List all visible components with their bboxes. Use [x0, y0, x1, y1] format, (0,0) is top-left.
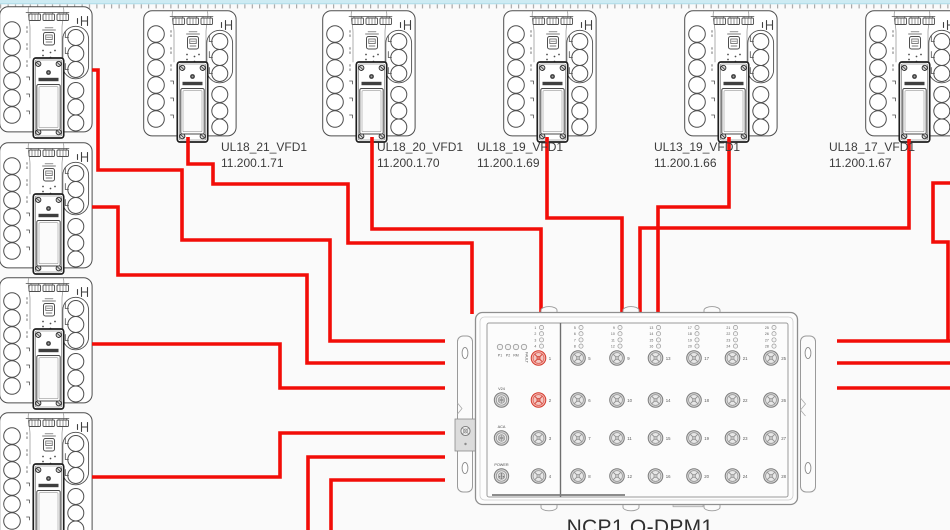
vfd-device-UL18_17_VFD1[interactable]	[866, 11, 950, 142]
svg-text:25: 25	[765, 326, 769, 330]
vfd-device-UL18_19_VFD1[interactable]	[504, 11, 596, 142]
svg-text:22: 22	[726, 332, 730, 336]
svg-text:23: 23	[726, 338, 730, 342]
svg-text:19: 19	[688, 338, 692, 342]
wiring-diagram[interactable]: 1234123456785678910111291011121314151613…	[0, 0, 950, 530]
svg-text:9: 9	[613, 326, 615, 330]
cable-9[interactable]	[547, 137, 622, 314]
port-number: 20	[704, 474, 709, 479]
svg-text:3: 3	[534, 338, 536, 342]
svg-text:POWER: POWER	[494, 463, 509, 467]
port-number: 22	[743, 398, 748, 403]
svg-text:16: 16	[649, 345, 653, 349]
vfd-device-UL18_21_VFD1[interactable]	[144, 11, 236, 142]
port-number: 25	[781, 356, 786, 361]
svg-text:26: 26	[765, 332, 769, 336]
port-number: 17	[704, 356, 709, 361]
svg-text:24: 24	[726, 345, 730, 349]
dbx-title: NCP1 Q-DPM1	[475, 516, 805, 530]
port-number: 21	[743, 356, 748, 361]
svg-text:2: 2	[534, 332, 536, 336]
vfd-device-left-2[interactable]	[0, 143, 92, 274]
svg-text:10: 10	[611, 332, 615, 336]
port-number: 10	[627, 398, 632, 403]
port-number: 26	[781, 398, 786, 403]
port-number: 13	[666, 356, 671, 361]
svg-text:13: 13	[649, 326, 653, 330]
port-number: 18	[704, 398, 709, 403]
svg-text:P1: P1	[498, 354, 502, 358]
svg-text:27: 27	[765, 338, 769, 342]
vfd-device-left-3[interactable]	[0, 278, 92, 409]
svg-text:12: 12	[611, 345, 615, 349]
port-number: 12	[627, 474, 632, 479]
svg-text:28: 28	[765, 345, 769, 349]
cable-5[interactable]	[308, 457, 445, 530]
svg-text:8: 8	[574, 345, 576, 349]
diagram-canvas[interactable]: 1234123456785678910111291011121314151613…	[0, 0, 950, 530]
svg-text:FAULT: FAULT	[524, 352, 528, 364]
svg-text:20: 20	[688, 345, 692, 349]
port-number: 28	[781, 474, 786, 479]
port-number: 16	[666, 474, 671, 479]
svg-text:14: 14	[649, 332, 653, 336]
cable-10[interactable]	[658, 137, 729, 314]
svg-text:21: 21	[726, 326, 730, 330]
svg-text:18: 18	[688, 332, 692, 336]
port-number: 23	[743, 436, 748, 441]
aux-port-POWER[interactable]: POWER	[494, 463, 509, 483]
svg-text:P2: P2	[506, 354, 510, 358]
port-number: 19	[704, 436, 709, 441]
port-number: 15	[666, 436, 671, 441]
dbx-right-bracket	[801, 336, 816, 492]
svg-text:6: 6	[574, 332, 576, 336]
vfd-device-UL18_20_VFD1[interactable]	[323, 11, 415, 142]
port-number: 14	[666, 398, 671, 403]
cable-clamp	[455, 419, 476, 451]
svg-text:11: 11	[611, 338, 615, 342]
cable-11[interactable]	[640, 139, 909, 314]
dbx-left-bracket	[455, 336, 476, 492]
cable-12[interactable]	[933, 183, 950, 341]
cable-8[interactable]	[372, 137, 541, 314]
svg-text:7: 7	[574, 338, 576, 342]
vfd-device-left-4[interactable]	[0, 413, 92, 530]
cable-6[interactable]	[331, 480, 445, 530]
vfd-device-left-1[interactable]	[0, 7, 92, 138]
port-number: 24	[743, 474, 748, 479]
vfd-device-UL13_19_VFD1[interactable]	[685, 11, 777, 142]
ruler	[0, 0, 950, 9]
svg-text:ACA: ACA	[498, 425, 506, 429]
svg-text:RM: RM	[513, 354, 519, 358]
port-number: 27	[781, 436, 786, 441]
svg-text:17: 17	[688, 326, 692, 330]
dbx-unit[interactable]: 1234123456785678910111291011121314151613…	[455, 307, 816, 511]
svg-text:V24: V24	[498, 387, 505, 391]
port-number: 11	[627, 436, 632, 441]
svg-text:4: 4	[534, 345, 536, 349]
svg-text:5: 5	[574, 326, 576, 330]
svg-text:15: 15	[649, 338, 653, 342]
cable-3[interactable]	[92, 344, 445, 388]
cable-4[interactable]	[92, 433, 445, 477]
svg-text:1: 1	[534, 326, 536, 330]
